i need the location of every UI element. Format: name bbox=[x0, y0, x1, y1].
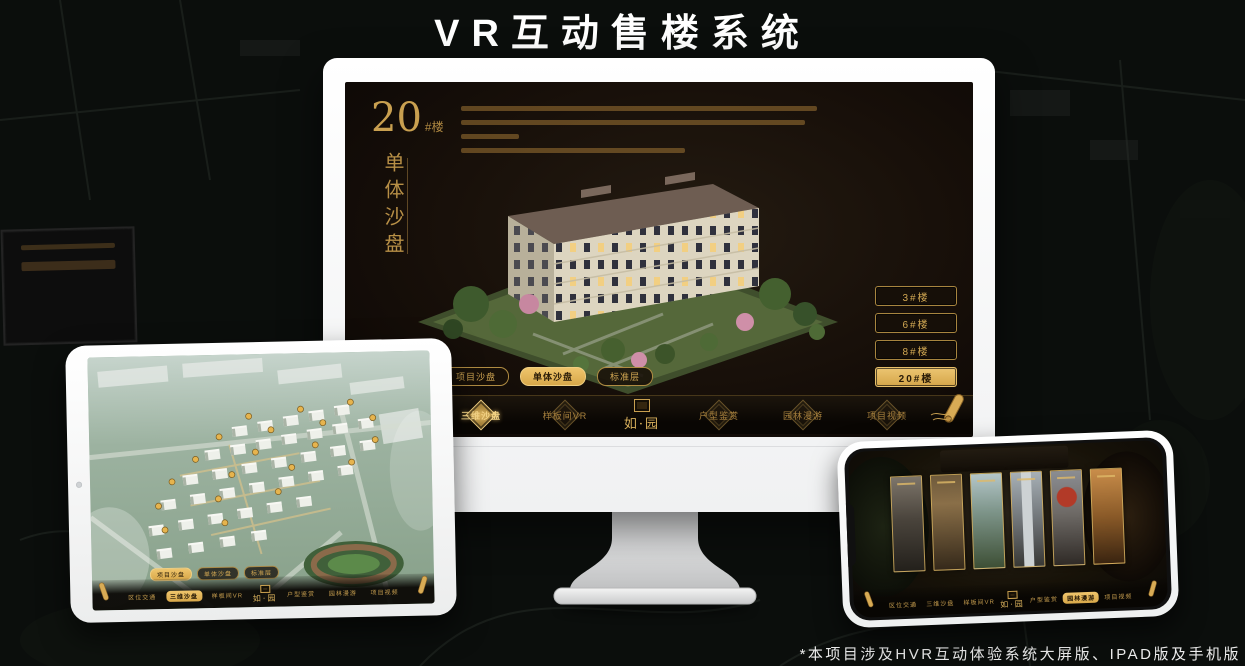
scene-card[interactable] bbox=[1090, 468, 1126, 565]
building-title: 20 #楼 bbox=[371, 98, 444, 138]
floor-button-3[interactable]: 3#楼 bbox=[875, 286, 957, 306]
scene-card[interactable] bbox=[1050, 469, 1086, 566]
building-3d-render[interactable] bbox=[413, 154, 843, 394]
building-number-suffix: #楼 bbox=[425, 118, 444, 135]
description-line bbox=[461, 134, 519, 139]
scene-card[interactable] bbox=[890, 475, 926, 572]
building-number: 20 bbox=[371, 98, 422, 138]
brand-logo-text: 如·园 bbox=[624, 413, 660, 432]
view-tab-group: 项目沙盘 单体沙盘 标准层 bbox=[443, 367, 653, 386]
phone-device: 区位交通 三维沙盘 样板间VR 如·园 户型鉴赏 园林漫游 项目视频 bbox=[837, 430, 1180, 629]
page-title: VR互动售楼系统 bbox=[0, 2, 1245, 57]
nav-item-showroom-vr[interactable]: 样板间VR bbox=[523, 398, 607, 432]
nav-item-label: 园林漫游 bbox=[783, 409, 823, 422]
nav-item-garden-roam[interactable]: 园林漫游 bbox=[761, 398, 845, 432]
tablet-bottom-nav: 区位交通 三维沙盘 样板间VR 如·园 户型鉴赏 园林漫游 项目视频 bbox=[92, 573, 435, 610]
scroll-icon[interactable] bbox=[412, 575, 431, 600]
nav-item-unit-plans[interactable]: 户型鉴赏 bbox=[677, 398, 761, 432]
description-line bbox=[461, 148, 685, 153]
plaque-text-line bbox=[21, 260, 115, 271]
floor-button-6[interactable]: 6#楼 bbox=[875, 313, 957, 333]
phone-brand-logo-text: 如·园 bbox=[1000, 598, 1025, 610]
footnote-text: *本项目涉及HVR互动体验系统大屏版、IPAD版及手机版 bbox=[800, 643, 1241, 664]
floor-button-group: 3#楼 6#楼 8#楼 20#楼 bbox=[875, 286, 957, 387]
phone-scene-card-row bbox=[849, 466, 1166, 574]
tab-project-sandbox[interactable]: 项目沙盘 bbox=[443, 367, 509, 386]
tablet-nav-project-video[interactable]: 项目视频 bbox=[366, 586, 402, 598]
phone-nav-showroom-vr[interactable]: 样板间VR bbox=[959, 595, 999, 608]
phone-screen: 区位交通 三维沙盘 样板间VR 如·园 户型鉴赏 园林漫游 项目视频 bbox=[848, 440, 1168, 618]
phone-brand-logo: 如·园 bbox=[1000, 590, 1025, 610]
plaque-text-line bbox=[21, 243, 115, 250]
description-line bbox=[461, 106, 817, 111]
seal-icon bbox=[260, 584, 270, 592]
phone-nav-project-video[interactable]: 项目视频 bbox=[1100, 590, 1136, 602]
tablet-nav-3d-sandbox[interactable]: 三维沙盘 bbox=[166, 590, 202, 602]
phone-scene-lintel bbox=[940, 446, 1069, 473]
brand-logo: 如·园 bbox=[607, 399, 677, 432]
tab-single-sandbox[interactable]: 单体沙盘 bbox=[520, 367, 586, 386]
seal-icon bbox=[634, 399, 650, 412]
tablet-nav-garden-roam[interactable]: 园林漫游 bbox=[325, 586, 361, 598]
phone-nav-3d-sandbox[interactable]: 三维沙盘 bbox=[922, 596, 958, 608]
scroll-icon[interactable] bbox=[1143, 580, 1160, 604]
floor-button-20[interactable]: 20#楼 bbox=[875, 367, 957, 387]
scene-card[interactable] bbox=[970, 472, 1006, 569]
tablet-brand-logo-text: 如·园 bbox=[253, 592, 278, 604]
tablet-nav-unit-plans[interactable]: 户型鉴赏 bbox=[283, 587, 319, 599]
scroll-icon[interactable] bbox=[96, 582, 115, 607]
phone-nav-unit-plans[interactable]: 户型鉴赏 bbox=[1026, 592, 1062, 604]
background-plaque bbox=[1, 226, 138, 345]
nav-item-project-video[interactable]: 项目视频 bbox=[845, 398, 929, 432]
phone-nav-location-traffic[interactable]: 区位交通 bbox=[885, 598, 921, 610]
nav-item-label: 项目视频 bbox=[867, 409, 907, 422]
monitor-stand bbox=[552, 512, 758, 616]
description-line bbox=[461, 120, 805, 125]
nav-item-label: 三维沙盘 bbox=[461, 409, 501, 422]
phone-glass: 区位交通 三维沙盘 样板间VR 如·园 户型鉴赏 园林漫游 项目视频 bbox=[844, 437, 1172, 621]
scroll-icon[interactable] bbox=[861, 591, 878, 615]
tablet-nav-location-traffic[interactable]: 区位交通 bbox=[124, 591, 160, 603]
tablet-camera-icon bbox=[76, 481, 82, 487]
tablet-screen: 项目沙盘 单体沙盘 标准层 区位交通 三维沙盘 样板间VR 如·园 户型鉴赏 园… bbox=[87, 350, 434, 610]
tablet-brand-logo: 如·园 bbox=[253, 584, 278, 604]
tablet-nav-showroom-vr[interactable]: 样板间VR bbox=[208, 589, 248, 601]
tab-standard-floor[interactable]: 标准层 bbox=[597, 367, 653, 386]
nav-item-label: 户型鉴赏 bbox=[699, 409, 739, 422]
scene-card[interactable] bbox=[930, 474, 966, 571]
scroll-icon[interactable] bbox=[929, 393, 967, 432]
tablet-device: 项目沙盘 单体沙盘 标准层 区位交通 三维沙盘 样板间VR 如·园 户型鉴赏 园… bbox=[65, 338, 457, 623]
subtitle-rule bbox=[407, 158, 408, 254]
nav-item-label: 样板间VR bbox=[543, 409, 588, 422]
floor-button-8[interactable]: 8#楼 bbox=[875, 340, 957, 360]
scene-card[interactable] bbox=[1010, 471, 1046, 568]
phone-nav-garden-roam[interactable]: 园林漫游 bbox=[1063, 591, 1099, 603]
subtitle-vertical: 单体沙盘 bbox=[379, 152, 408, 260]
